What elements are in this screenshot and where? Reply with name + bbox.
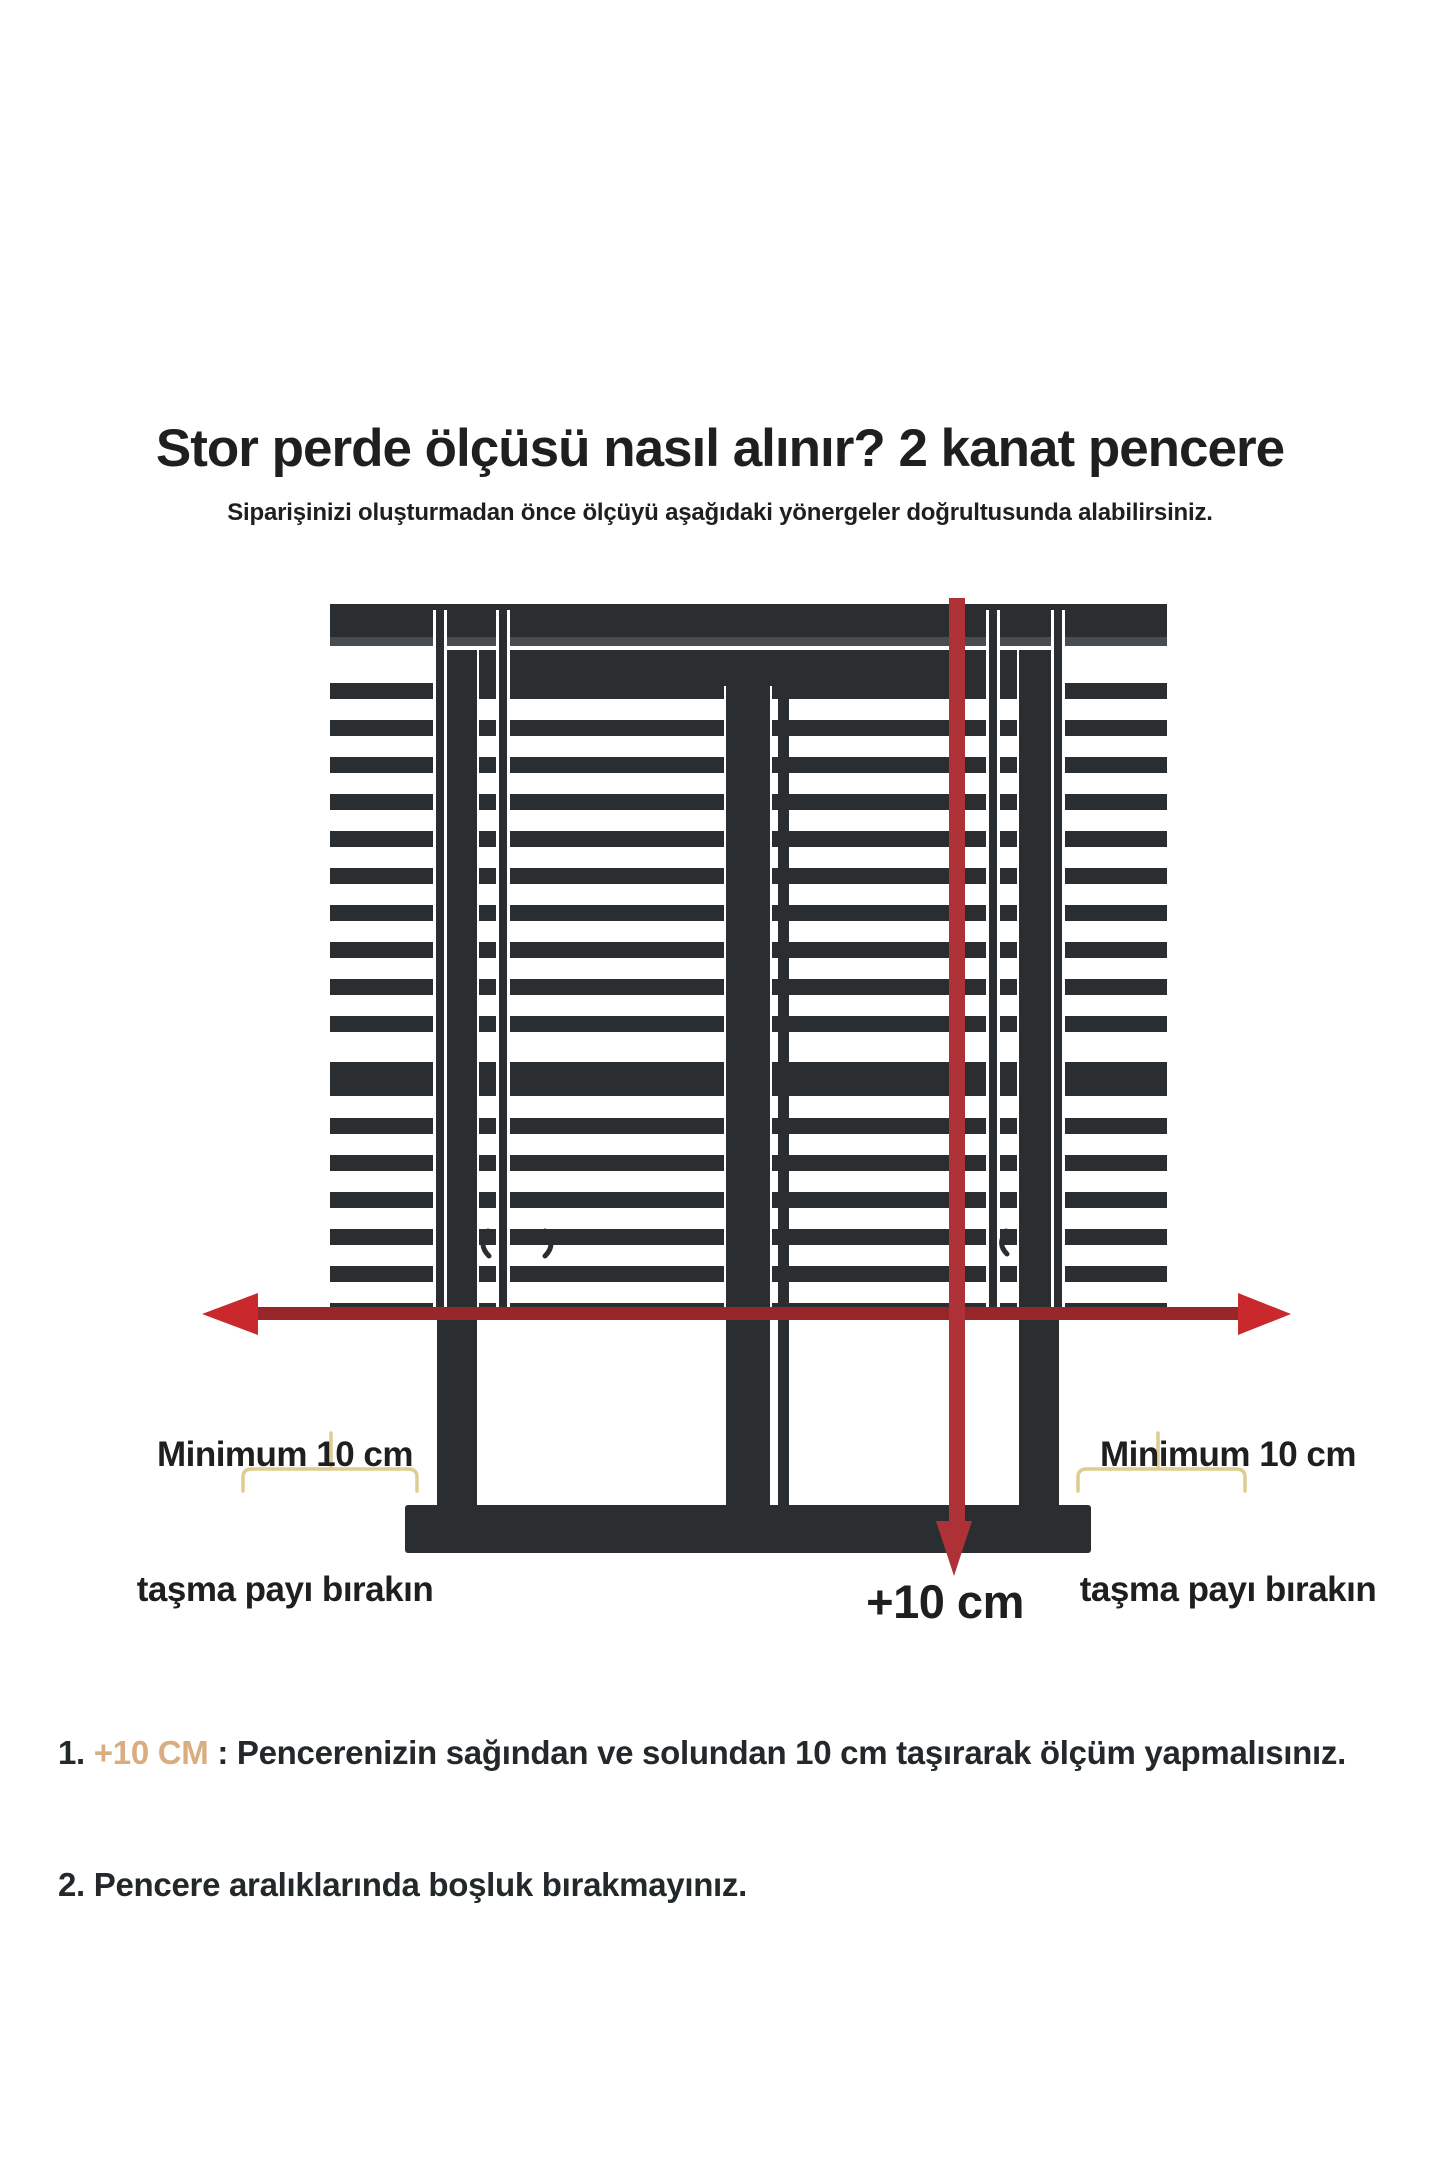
page-subtitle: Siparişinizi oluşturmadan önce ölçüyü aş…	[0, 499, 1440, 527]
note-item-2: 2. Pencere aralıklarında boşluk bırakmay…	[58, 1863, 1398, 1907]
instruction-notes: 1. +10 CM : Pencerenizin sağından ve sol…	[58, 1643, 1398, 1995]
ladder-string	[989, 610, 997, 1319]
note1-number: 1.	[58, 1734, 94, 1771]
note2-text: Pencere aralıklarında boşluk bırakmayını…	[94, 1866, 747, 1903]
right-overhang-line1: Minimum 10 cm	[1028, 1432, 1428, 1477]
ladder-string	[499, 610, 507, 1319]
height-arrow-shaft	[949, 598, 965, 1523]
ladder-string	[436, 610, 444, 1319]
note-item-1: 1. +10 CM : Pencerenizin sağından ve sol…	[58, 1731, 1398, 1775]
window-top-frame	[437, 650, 1059, 686]
sash-edge-line	[778, 686, 789, 1509]
width-arrow-shaft	[256, 1307, 1240, 1320]
left-overhang-line1: Minimum 10 cm	[85, 1432, 485, 1477]
ladder-string	[1054, 610, 1062, 1319]
width-arrow-right-head	[1238, 1293, 1291, 1335]
headrail-bar	[330, 604, 1167, 637]
window-sill	[405, 1505, 1091, 1553]
headrail-edge	[330, 637, 1167, 646]
note2-number: 2.	[58, 1866, 94, 1903]
width-arrow-left-head	[202, 1293, 258, 1335]
note1-text: : Pencerenizin sağından ve solundan 10 c…	[208, 1734, 1345, 1771]
page-title: Stor perde ölçüsü nasıl alınır? 2 kanat …	[0, 418, 1440, 479]
note1-highlight: +10 CM	[94, 1734, 209, 1771]
left-overhang-line2: taşma payı bırakın	[85, 1567, 485, 1612]
bottom-measure-label: +10 cm	[795, 1574, 1095, 1629]
infographic-page: Stor perde ölçüsü nasıl alınır? 2 kanat …	[0, 0, 1440, 2160]
blind-headrail	[330, 604, 1167, 646]
center-mullion	[726, 686, 770, 1509]
